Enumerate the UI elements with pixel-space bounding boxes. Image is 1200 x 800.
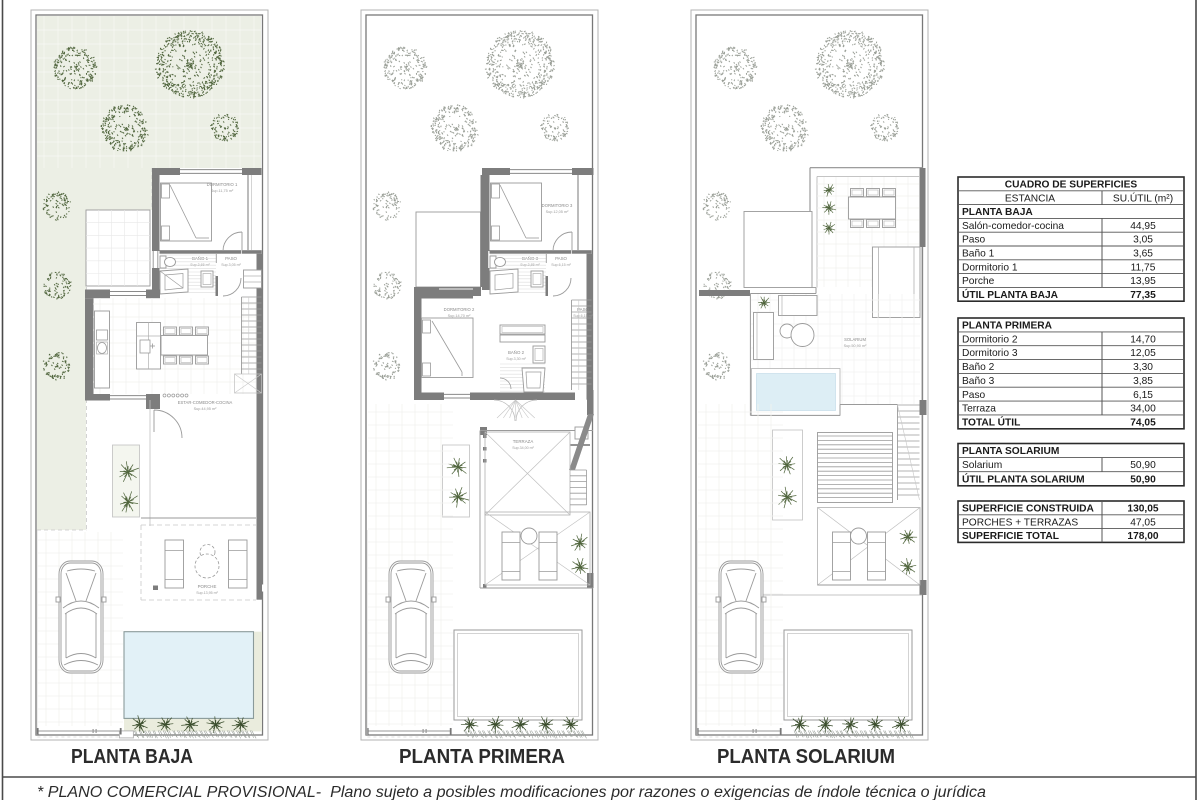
svg-text:DORMITORIO 2: DORMITORIO 2 xyxy=(444,307,475,312)
svg-text:12,05: 12,05 xyxy=(1130,348,1156,359)
svg-text:Sup.6,15 m²: Sup.6,15 m² xyxy=(573,314,593,318)
svg-text:Sup.14,70 m²: Sup.14,70 m² xyxy=(448,314,472,318)
svg-text:14,70: 14,70 xyxy=(1130,334,1156,345)
svg-text:Dormitorio 3: Dormitorio 3 xyxy=(962,348,1018,359)
svg-text:Baño 3: Baño 3 xyxy=(962,376,995,387)
svg-text:* PLANO COMERCIAL PROVISIONAL-: * PLANO COMERCIAL PROVISIONAL- Plano suj… xyxy=(37,784,986,800)
svg-text:Paso: Paso xyxy=(962,390,986,401)
svg-text:44,95: 44,95 xyxy=(1130,221,1156,232)
svg-text:Sup.3,30 m²: Sup.3,30 m² xyxy=(506,357,526,361)
svg-text:PLANTA PRIMERA: PLANTA PRIMERA xyxy=(399,746,565,768)
svg-text:74,05: 74,05 xyxy=(1130,418,1156,429)
svg-text:CUADRO DE SUPERFICIES: CUADRO DE SUPERFICIES xyxy=(1005,180,1138,191)
svg-text:11,75: 11,75 xyxy=(1131,262,1156,273)
svg-text:3,05: 3,05 xyxy=(1133,235,1153,246)
svg-text:DORMITORIO 3: DORMITORIO 3 xyxy=(542,203,573,208)
svg-text:SUPERFICIE CONSTRUIDA: SUPERFICIE CONSTRUIDA xyxy=(962,504,1095,515)
svg-text:PLANTA BAJA: PLANTA BAJA xyxy=(962,207,1033,218)
svg-text:PLANTA SOLARIUM: PLANTA SOLARIUM xyxy=(962,446,1059,457)
svg-text:SUPERFICIE TOTAL: SUPERFICIE TOTAL xyxy=(962,531,1059,542)
svg-text:TERRAZA: TERRAZA xyxy=(513,439,534,444)
svg-text:Paso: Paso xyxy=(962,235,986,246)
svg-text:PLANTA BAJA: PLANTA BAJA xyxy=(71,746,193,768)
svg-text:ÚTIL PLANTA SOLARIUM: ÚTIL PLANTA SOLARIUM xyxy=(962,472,1085,485)
svg-text:178,00: 178,00 xyxy=(1127,531,1158,542)
svg-text:47,05: 47,05 xyxy=(1130,517,1156,528)
svg-text:TOTAL ÚTIL: TOTAL ÚTIL xyxy=(962,416,1020,429)
svg-text:PORCHE: PORCHE xyxy=(198,584,217,589)
svg-text:Baño 1: Baño 1 xyxy=(962,249,995,260)
svg-text:Sup.13,95 m²: Sup.13,95 m² xyxy=(196,591,218,595)
svg-text:Dormitorio 2: Dormitorio 2 xyxy=(962,334,1018,345)
svg-text:Sup.6,15 m²: Sup.6,15 m² xyxy=(551,263,571,267)
svg-text:50,90: 50,90 xyxy=(1130,474,1156,485)
svg-text:Porche: Porche xyxy=(962,276,995,287)
svg-text:Sup.34,00 m²: Sup.34,00 m² xyxy=(512,446,534,450)
svg-text:BAÑO 2: BAÑO 2 xyxy=(508,350,525,355)
svg-text:PASO: PASO xyxy=(555,256,567,261)
svg-text:3,85: 3,85 xyxy=(1133,376,1153,387)
svg-text:Sup.44,95 m²: Sup.44,95 m² xyxy=(194,407,218,411)
svg-text:PLANTA SOLARIUM: PLANTA SOLARIUM xyxy=(717,746,895,768)
svg-text:50,90: 50,90 xyxy=(1130,460,1156,471)
svg-text:6,15: 6,15 xyxy=(1133,390,1153,401)
svg-text:ESTAR-COMEDOR-COCINA: ESTAR-COMEDOR-COCINA xyxy=(178,400,233,405)
svg-text:PLANTA PRIMERA: PLANTA PRIMERA xyxy=(962,321,1053,332)
svg-text:Dormitorio 1: Dormitorio 1 xyxy=(962,262,1018,273)
svg-text:130,05: 130,05 xyxy=(1127,504,1158,515)
svg-text:Salón-comedor-cocina: Salón-comedor-cocina xyxy=(962,221,1064,232)
svg-text:DORMITORIO 1: DORMITORIO 1 xyxy=(207,182,238,187)
svg-text:77,35: 77,35 xyxy=(1130,290,1156,301)
svg-text:3,65: 3,65 xyxy=(1133,249,1153,260)
svg-text:PASO: PASO xyxy=(225,256,237,261)
svg-text:Sup.11,75 m²: Sup.11,75 m² xyxy=(211,189,234,193)
svg-text:ÚTIL PLANTA BAJA: ÚTIL PLANTA BAJA xyxy=(962,288,1059,301)
svg-text:Terraza: Terraza xyxy=(962,404,996,415)
svg-text:Baño 2: Baño 2 xyxy=(962,362,995,373)
svg-text:ESTANCIA: ESTANCIA xyxy=(1005,193,1055,204)
svg-text:3,30: 3,30 xyxy=(1133,362,1153,373)
svg-text:Solarium: Solarium xyxy=(962,460,1002,471)
svg-text:PORCHES + TERRAZAS: PORCHES + TERRAZAS xyxy=(962,517,1078,528)
svg-text:SOLARIUM: SOLARIUM xyxy=(844,337,866,342)
svg-text:Sup.3,05 m²: Sup.3,05 m² xyxy=(221,263,241,267)
svg-text:13,95: 13,95 xyxy=(1130,276,1156,287)
svg-text:Sup.50,90 m²: Sup.50,90 m² xyxy=(844,344,868,348)
svg-text:Sup.12,05 m²: Sup.12,05 m² xyxy=(546,210,570,214)
svg-text:34,00: 34,00 xyxy=(1130,404,1156,415)
svg-text:SU.ÚTIL (m²): SU.ÚTIL (m²) xyxy=(1113,191,1173,204)
